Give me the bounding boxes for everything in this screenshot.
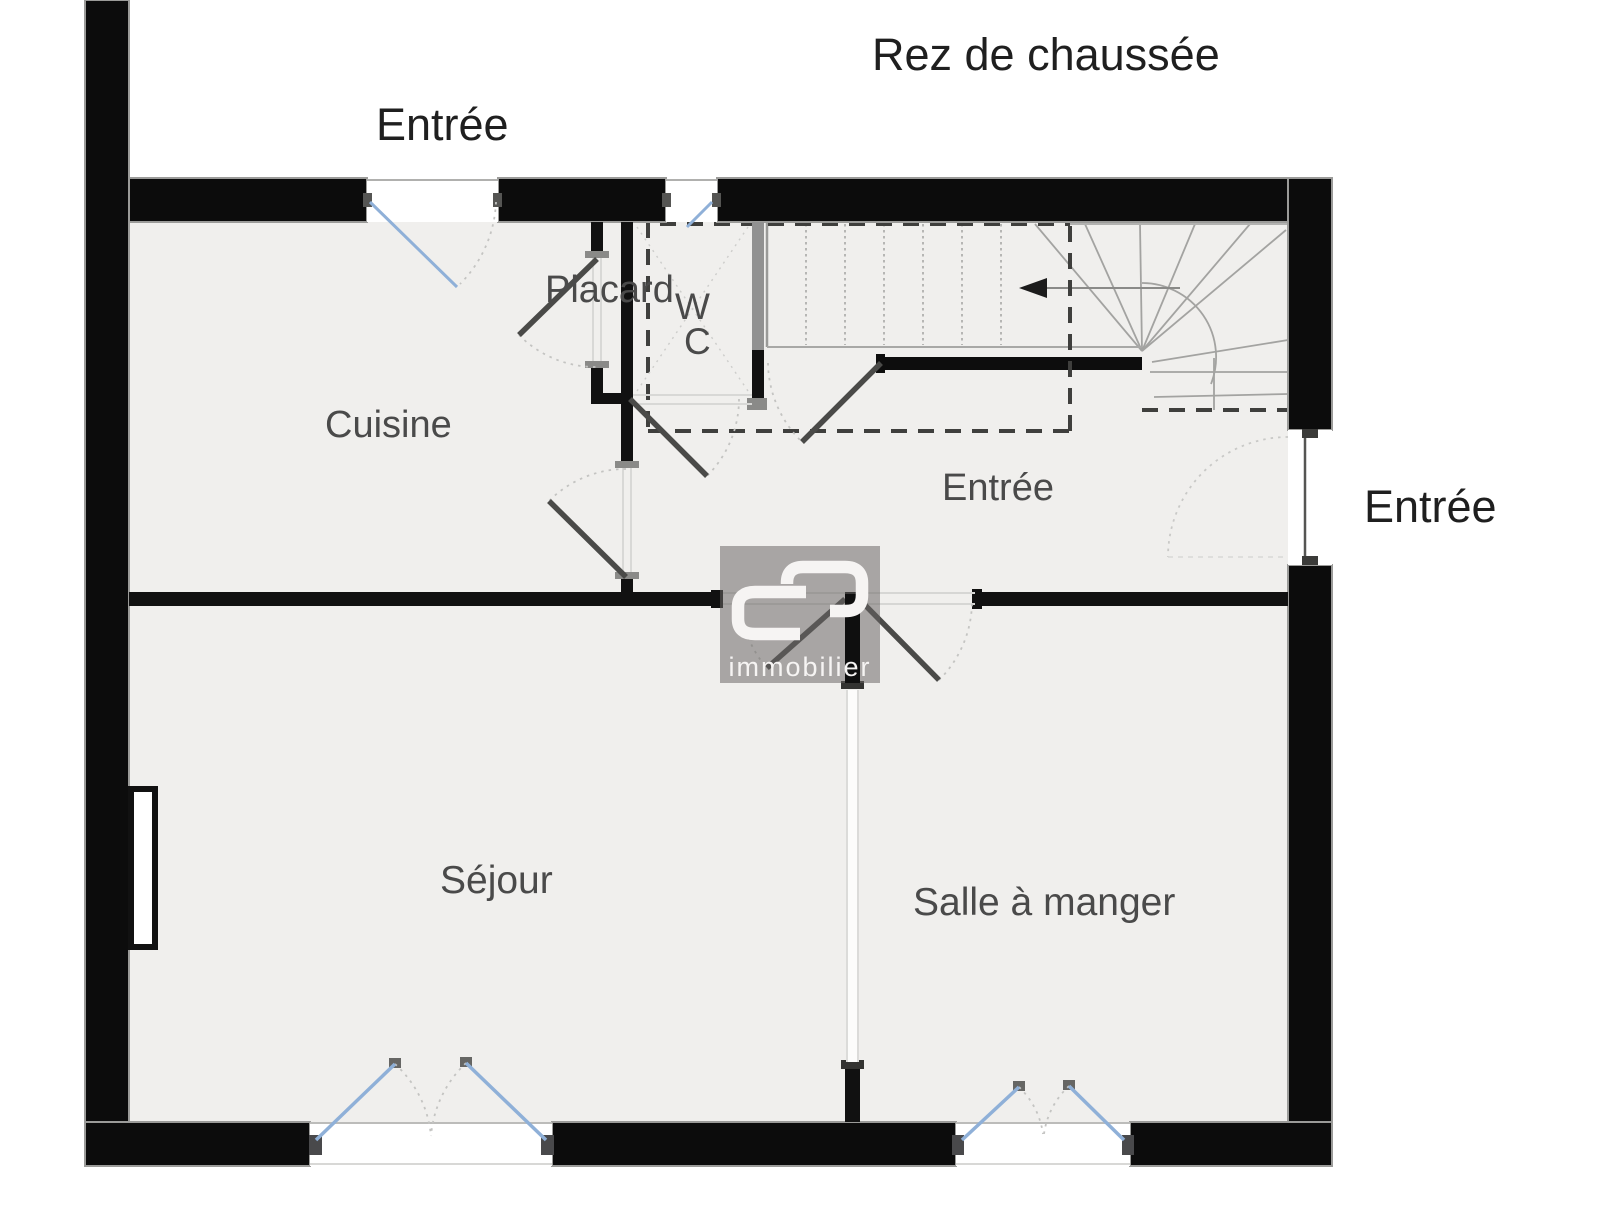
svg-text:Entrée: Entrée	[942, 467, 1054, 509]
svg-text:Cuisine: Cuisine	[325, 404, 452, 446]
svg-text:Salle à manger: Salle à manger	[913, 881, 1175, 924]
svg-text:Entrée: Entrée	[1364, 481, 1497, 532]
svg-text:Entrée: Entrée	[376, 99, 509, 150]
svg-text:Séjour: Séjour	[440, 859, 553, 902]
svg-text:C: C	[684, 321, 711, 362]
svg-text:Placard: Placard	[545, 269, 674, 311]
svg-text:immobilier: immobilier	[728, 652, 871, 682]
svg-text:Rez de chaussée: Rez de chaussée	[872, 29, 1220, 80]
